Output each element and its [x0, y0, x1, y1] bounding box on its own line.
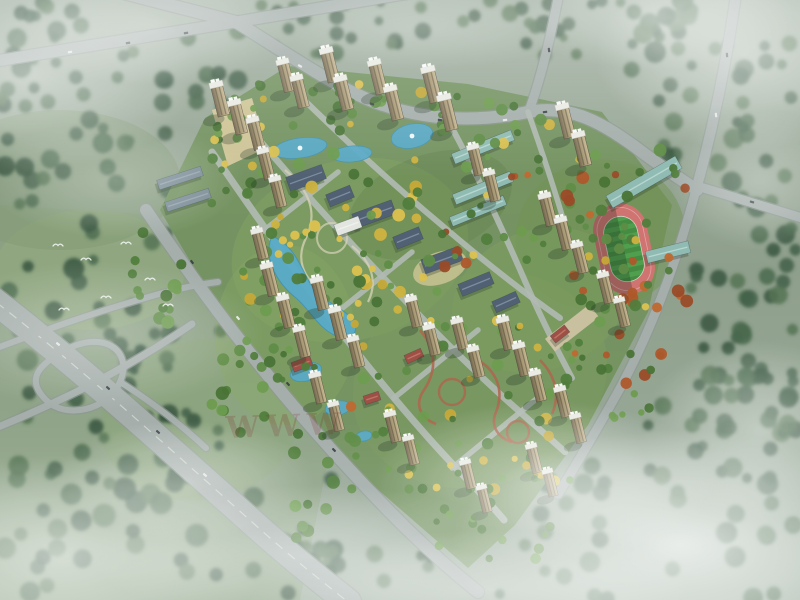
- grade-layer: [0, 0, 800, 600]
- aerial-rendering: WWW: [0, 0, 800, 600]
- scene-canvas: WWW: [0, 0, 800, 600]
